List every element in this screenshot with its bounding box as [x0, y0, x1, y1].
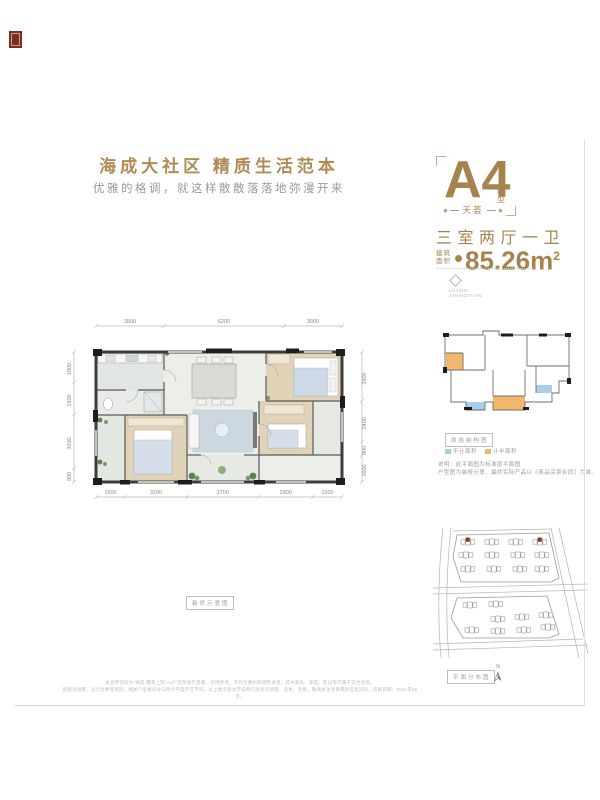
site-plan-caption: 平面分布图	[447, 670, 495, 684]
svg-text:3500: 3500	[124, 319, 136, 325]
right-rule	[584, 140, 585, 705]
structure-legend: 不计面积 计半面积	[445, 447, 517, 455]
svg-text:1500: 1500	[104, 490, 116, 496]
highlighted-building-2	[538, 538, 542, 542]
legend-item-no-area: 不计面积	[445, 447, 477, 455]
brand-line2: SHANGYUAN	[449, 293, 482, 298]
area-value: 85.26m2	[465, 243, 560, 274]
legend-label-half-area: 计半面积	[493, 447, 517, 455]
north-label: N	[491, 664, 505, 670]
svg-text:800: 800	[67, 472, 73, 481]
tv-wall	[253, 412, 257, 448]
series-row: 天荟	[444, 204, 502, 216]
series-rule-left	[450, 210, 460, 211]
area-number: 85.26m	[465, 246, 553, 276]
site-plan-svg	[433, 528, 588, 658]
structure-note-1: 说明：此平面图为标准层平面图	[438, 460, 521, 468]
svg-text:1500: 1500	[321, 490, 333, 496]
area-row: 建筑 面积 85.26m2	[436, 243, 560, 274]
wardrobe2	[128, 418, 184, 426]
unit-suffix-char2: 型	[497, 195, 505, 204]
footer-disclaimer: 本宣传资料为“海成·麓景上院”A4户型装修示意图，仅供参考，不作为要约和销售承诺…	[60, 679, 420, 700]
legend-swatch-orange	[485, 449, 491, 454]
brand-seal-inner	[11, 33, 20, 46]
desk3	[264, 405, 304, 414]
disclaimer-line1: 本宣传资料为“海成·麓景上院”A4户型装修示意图，仅供参考，不作为要约和销售承诺…	[60, 679, 420, 686]
flyer-page: { "page": { "accent_color": "#a6834e", "…	[0, 0, 600, 800]
svg-text:3000: 3000	[307, 319, 319, 325]
svg-text:2400: 2400	[362, 417, 368, 429]
bottom-rule	[15, 705, 585, 706]
svg-text:3200: 3200	[150, 490, 162, 496]
svg-text:6200: 6200	[218, 319, 230, 325]
dashed-separator	[437, 268, 533, 269]
svg-text:1900: 1900	[67, 394, 73, 406]
page-title: 海成大社区 精质生活范本	[15, 152, 423, 177]
legend-swatch-blue	[445, 449, 451, 454]
svg-text:2900: 2900	[362, 372, 368, 384]
series-rule-right	[487, 210, 497, 211]
structure-thumbnail-svg	[441, 326, 576, 426]
series-name: 天荟	[462, 204, 483, 216]
svg-text:1600: 1600	[362, 464, 368, 476]
structure-note-2: 户型图为装修示意，最终实际产品以《商品买卖合同》为准。	[438, 468, 597, 476]
area-label: 建筑 面积	[436, 250, 451, 266]
brand-diamond-icon	[449, 274, 462, 287]
structure-caption: 原始结构图	[445, 433, 493, 447]
floor-plan-svg: 3500 6200 3000 1500 3200 3700 2800 1500 …	[56, 312, 376, 517]
toilet	[104, 398, 113, 410]
svg-text:2800: 2800	[280, 490, 292, 496]
wardrobe	[268, 354, 290, 364]
unit-suffix-char1: 户	[497, 186, 505, 195]
svg-text:3200: 3200	[67, 437, 73, 449]
dining-table	[192, 364, 236, 398]
floor-plan-caption: 装修示意图	[186, 596, 234, 610]
disclaimer-line2: 因规划调整、设计变更等原因，相关户型格局会与所示平面存在不同，以上图示及文字说明…	[60, 686, 420, 700]
legend-label-no-area: 不计面积	[453, 447, 477, 455]
area-label-line2: 面积	[436, 258, 451, 266]
sofa	[189, 414, 199, 448]
north-arrow-icon	[492, 671, 504, 683]
brand-seal-icon	[9, 31, 22, 48]
area-bullet-icon	[455, 255, 462, 262]
svg-text:800: 800	[362, 446, 368, 455]
legend-item-half-area: 计半面积	[485, 447, 517, 455]
north-arrow: N	[491, 664, 505, 688]
svg-text:1800: 1800	[67, 363, 73, 375]
coffee-table	[215, 423, 229, 437]
area-superscript: 2	[553, 249, 560, 263]
series-diamond-left-icon	[443, 208, 447, 212]
unit-suffix: 户 型	[497, 186, 506, 204]
page-subtitle: 优雅的格调，就这样散散落落地弥漫开来	[15, 180, 423, 196]
roads	[433, 528, 588, 658]
highlighted-building-1	[466, 538, 470, 542]
svg-text:3700: 3700	[217, 490, 229, 496]
brand-mini-block: LUJING SHANGYUAN	[449, 276, 482, 298]
